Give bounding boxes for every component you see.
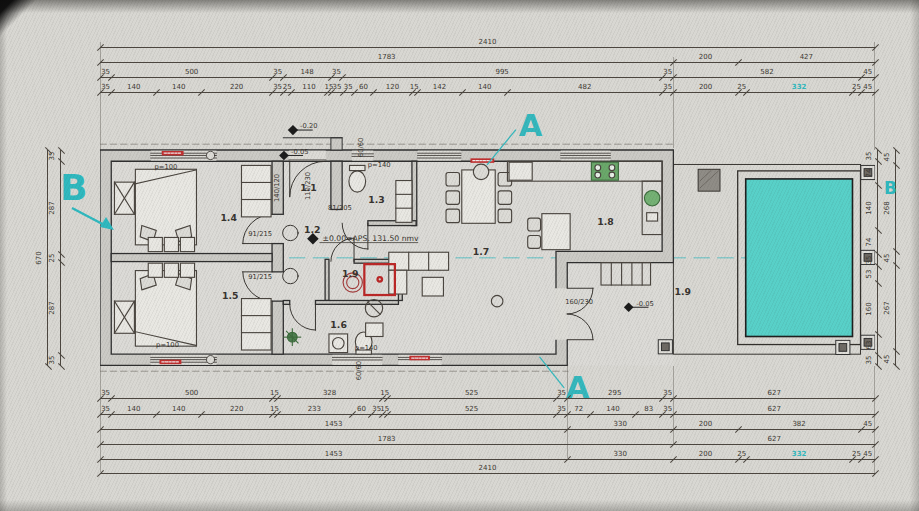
dim-label: 35 — [866, 255, 873, 264]
dim-tick — [874, 331, 881, 338]
dim-label: 60 — [357, 406, 366, 413]
dim-tick — [57, 259, 64, 266]
dim-tick — [57, 352, 64, 359]
dim-tick — [872, 394, 879, 401]
dim-label: 267 — [884, 302, 891, 315]
dim-label: 25 — [737, 84, 746, 91]
dim-tick — [97, 469, 104, 476]
dim-tick — [872, 425, 879, 432]
dim-tick — [892, 363, 899, 370]
dim-label: 35 — [663, 390, 672, 397]
dim-tick — [874, 227, 881, 234]
dim-label: 35 — [101, 69, 110, 76]
dim-label: 35 — [49, 356, 56, 365]
entry-door-size: 110/230 — [304, 172, 312, 200]
dim-label: 1453 — [325, 421, 343, 428]
dim-label: 45 — [863, 421, 872, 428]
kitchen-sink — [644, 191, 659, 206]
dim-tick — [872, 58, 879, 65]
terrace-door-size: 160/230 — [565, 298, 593, 306]
dim-label: 45 — [884, 354, 891, 363]
dim-tick — [632, 410, 639, 417]
dim-tick — [198, 410, 205, 417]
vanity — [329, 334, 348, 353]
dim-label: 83 — [644, 406, 653, 413]
parapet-bedroom-top: p=100 — [155, 163, 178, 171]
dim-label: 45 — [884, 254, 891, 263]
parapet-wc: p=140 — [368, 161, 391, 169]
coffee-table — [422, 277, 443, 296]
dim-tick — [874, 363, 881, 370]
dim-chain-bottom-row1: 3550015328155253529535627 — [100, 388, 875, 399]
wardrobe — [241, 165, 271, 216]
window-vent — [206, 355, 214, 363]
dim-tick — [892, 262, 899, 269]
dim-label: 74 — [866, 238, 873, 247]
stove — [591, 162, 618, 180]
dim-tick — [874, 251, 881, 258]
island — [542, 214, 570, 250]
dim-label: 15 — [410, 84, 419, 91]
dim-chain-right-inner: 35741407435531606335 — [877, 150, 878, 366]
room-1-9-utility: 1.9 — [342, 268, 359, 279]
dim-label: 140 — [866, 201, 873, 214]
dim-label: 482 — [578, 84, 591, 91]
dim-tick — [670, 455, 677, 462]
room-1-2: 1.2 — [304, 224, 321, 235]
section-letter-a-top: A — [519, 108, 543, 143]
dim-label: 500 — [185, 390, 198, 397]
floor-plan-photo: B B — [0, 0, 919, 511]
dim-tick — [504, 88, 511, 95]
dim-tick — [872, 455, 879, 462]
room-1-3: 1.3 — [368, 194, 385, 205]
dim-label: 140 — [127, 84, 140, 91]
dim-label: 582 — [760, 69, 773, 76]
dim-label: 627 — [767, 406, 780, 413]
wc-door-size: 81/205 — [328, 204, 352, 212]
dim-label: 220 — [230, 406, 243, 413]
section-marker-b-left: B — [52, 158, 124, 240]
dim-label: 295 — [608, 390, 621, 397]
dim-tick — [872, 440, 879, 447]
dim-chain-bottom-row4: 1783627 — [100, 434, 875, 445]
dim-chain-bottom-row2: 351401402201523360351552535721408335627 — [100, 404, 875, 415]
room-1-9-terrace: 1.9 — [674, 286, 691, 297]
window-vent — [206, 151, 214, 159]
room-1-4: 1.4 — [220, 212, 237, 223]
dim-label: 330 — [614, 421, 627, 428]
dim-tick — [872, 469, 879, 476]
dim-tick — [198, 88, 205, 95]
dim-tick — [872, 73, 879, 80]
dim-tick — [735, 425, 742, 432]
dim-tick — [892, 147, 899, 154]
dim-chain-top-row4: 3514014022035251101535356012015142140482… — [100, 82, 875, 93]
dim-label: 25 — [852, 451, 861, 458]
dim-label: 35 — [273, 69, 282, 76]
dim-tick — [872, 88, 879, 95]
bedroom-door-size-1: 91/215 — [248, 230, 272, 238]
room-1-6: 1.6 — [330, 319, 347, 330]
toilet — [349, 165, 366, 192]
dim-label: 35 — [866, 356, 873, 365]
dim-label: 200 — [699, 451, 712, 458]
dim-label: 35 — [101, 390, 110, 397]
dim-label: 200 — [699, 84, 712, 91]
wardrobe — [241, 299, 271, 350]
dim-label: 140 — [172, 84, 185, 91]
dim-label: 45 — [863, 84, 872, 91]
fridge — [509, 162, 532, 180]
dim-tick — [153, 410, 160, 417]
dim-chain-top-row3: 3550035148359953558245 — [100, 67, 875, 78]
dim-label: 35 — [101, 84, 110, 91]
dim-label: 525 — [465, 406, 478, 413]
dim-label: 200 — [699, 421, 712, 428]
dim-label: 1453 — [325, 451, 343, 458]
room-1-7: 1.7 — [473, 246, 490, 257]
dim-tick — [872, 43, 879, 50]
dim-label: 220 — [230, 84, 243, 91]
dim-tick — [872, 410, 879, 417]
dim-label: 25 — [49, 254, 56, 263]
dim-tick — [459, 88, 466, 95]
dim-tick — [57, 147, 64, 154]
room-1-8: 1.8 — [597, 216, 614, 227]
dim-tick — [735, 58, 742, 65]
dim-tick — [587, 410, 594, 417]
dim-label: 268 — [884, 201, 891, 214]
dim-label: 995 — [495, 69, 508, 76]
level-outside: -0.20 — [300, 122, 317, 130]
dim-label: 35 — [332, 69, 341, 76]
shower-tray — [366, 323, 383, 337]
dim-label: 525 — [465, 390, 478, 397]
dim-tick — [874, 352, 881, 359]
hall-window-size: 140/120 — [273, 174, 281, 202]
dim-label: 330 — [614, 451, 627, 458]
bath-window-size: 60/60 — [355, 361, 363, 380]
dim-label: 382 — [792, 421, 805, 428]
dim-label: 35 — [663, 84, 672, 91]
dim-chain-top-row1: 2410 — [100, 37, 875, 48]
dim-label: 35 — [557, 406, 566, 413]
dim-label: 53 — [866, 270, 873, 279]
dim-label: 35 — [344, 84, 353, 91]
dim-chain-bottom-row5: 1453330200253322545 — [100, 449, 875, 460]
pool-water — [746, 179, 853, 337]
dim-label: 140 — [127, 406, 140, 413]
dim-label: 35 — [866, 151, 873, 160]
dim-tick — [349, 410, 356, 417]
dim-label: 332 — [792, 84, 807, 91]
dim-label: 328 — [323, 390, 336, 397]
dim-tick — [370, 88, 377, 95]
dim-label: 670 — [36, 251, 43, 264]
dim-label: 148 — [300, 69, 313, 76]
dim-tick — [57, 251, 64, 258]
dim-tick — [874, 158, 881, 165]
section-letter-b-left: B — [60, 167, 87, 208]
dim-label: 332 — [792, 451, 807, 458]
parapet-bath: p=140 — [355, 344, 378, 352]
datum-label: ±0.00=APS. 131.50 nmv — [323, 234, 420, 243]
dim-label: 35 — [273, 84, 282, 91]
dim-label: 140 — [606, 406, 619, 413]
dim-label: 35 — [333, 84, 342, 91]
dim-label: 200 — [699, 54, 712, 61]
parapet-bedroom-bottom: p=100 — [156, 341, 179, 349]
dim-label: 140 — [478, 84, 491, 91]
dim-tick — [874, 147, 881, 154]
dim-label: 140 — [172, 406, 185, 413]
dim-label: 142 — [433, 84, 446, 91]
dim-label: 60 — [359, 84, 368, 91]
dim-label: 2410 — [479, 465, 497, 472]
dim-label: 45 — [863, 451, 872, 458]
dim-tick — [874, 280, 881, 287]
dim-label: 45 — [863, 69, 872, 76]
dim-tick — [892, 248, 899, 255]
dim-tick — [892, 348, 899, 355]
wc-cabinet — [396, 181, 412, 223]
outdoor-equipment — [698, 169, 720, 191]
dim-tick — [892, 161, 899, 168]
dim-chain-top-row2: 1783200427 — [100, 52, 875, 63]
dim-label: 72 — [574, 406, 583, 413]
dim-label: 120 — [386, 84, 399, 91]
dim-label: 1783 — [378, 54, 396, 61]
dim-label: 627 — [767, 390, 780, 397]
dim-label: 35 — [557, 390, 566, 397]
wc-window-size: 60/60 — [357, 138, 365, 157]
floor-plan: -0.20 -0.05 -0.05 ±0.00=APS. 131.50 nmv … — [100, 108, 875, 401]
dim-tick — [57, 363, 64, 370]
bedroom-door-size-2: 91/215 — [248, 273, 272, 281]
dim-label: 63 — [866, 340, 873, 349]
dim-label: 25 — [283, 84, 292, 91]
dim-label: 1783 — [378, 436, 396, 443]
dim-label: 45 — [884, 153, 891, 162]
dim-label: 427 — [800, 54, 813, 61]
dim-label: 35 — [101, 406, 110, 413]
dim-tick — [874, 263, 881, 270]
section-letter-b-right: B — [884, 178, 897, 198]
dim-tick — [874, 182, 881, 189]
dim-label: 160 — [866, 302, 873, 315]
level-entry: -0.05 — [291, 148, 308, 156]
dim-label: 233 — [308, 406, 321, 413]
dim-chain-bottom-row6: 2410 — [100, 463, 875, 474]
dim-label: 25 — [852, 84, 861, 91]
dim-label: 2410 — [479, 39, 497, 46]
dim-label: 500 — [185, 69, 198, 76]
dim-chain-bottom-row3: 145333020038245 — [100, 419, 875, 430]
wardrobe-x — [114, 301, 134, 333]
dim-label: 25 — [737, 451, 746, 458]
dim-label: 287 — [49, 302, 56, 315]
room-1-5: 1.5 — [222, 290, 239, 301]
dim-tick — [670, 440, 677, 447]
dim-label: 110 — [302, 84, 315, 91]
level-terrace: -0.05 — [636, 300, 653, 308]
dim-label: 74 — [866, 169, 873, 178]
dim-tick — [564, 455, 571, 462]
dim-label: 35 — [663, 406, 672, 413]
sofa — [389, 252, 449, 270]
dim-label: 627 — [767, 436, 780, 443]
dim-label: 35 — [663, 69, 672, 76]
dim-tick — [153, 88, 160, 95]
